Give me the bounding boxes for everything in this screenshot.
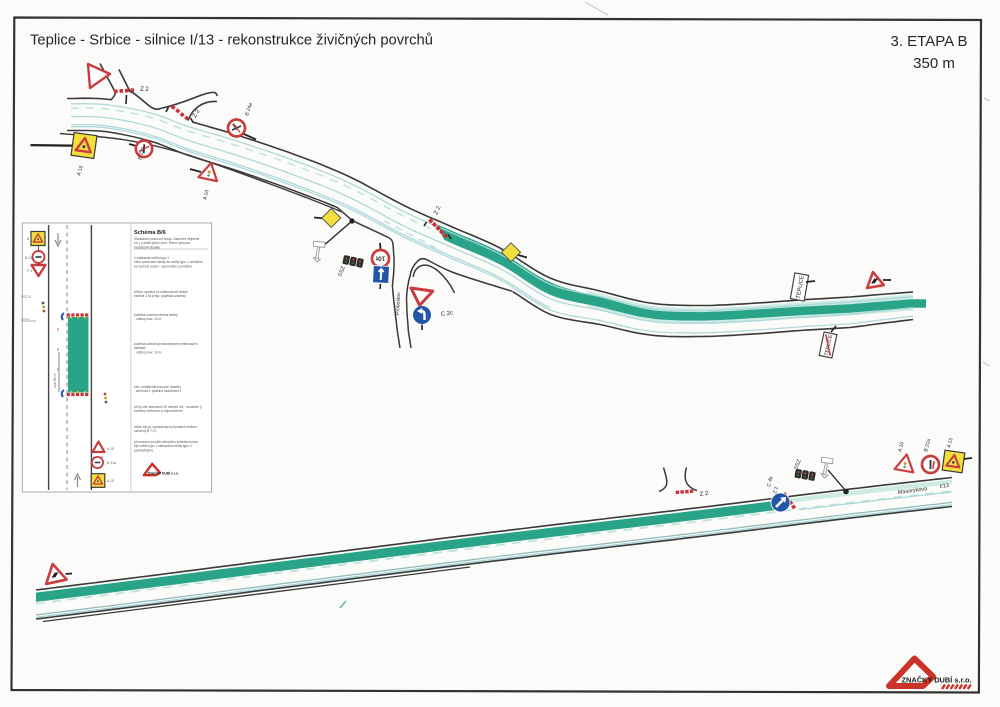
- svg-text:350 m: 350 m: [913, 55, 955, 72]
- svg-text:světelný měsíčním a doporučení: světelný měsíčním a doporučením: [134, 409, 183, 413]
- svg-text:B 21a: B 21a: [107, 461, 116, 465]
- svg-text:3. ETAPA B: 3. ETAPA B: [891, 33, 968, 50]
- svg-text:A 15: A 15: [107, 447, 114, 451]
- svg-text:cca 50 m: cca 50 m: [53, 373, 57, 388]
- svg-text:Teplice - Srbice - silnice I/: Teplice - Srbice - silnice I/13 - rekons…: [30, 33, 433, 49]
- svg-text:P 4: P 4: [27, 269, 32, 273]
- svg-text:Schéma B/6: Schéma B/6: [134, 230, 166, 236]
- svg-text:A 15: A 15: [107, 479, 114, 483]
- svg-text:miněně 3 ks (resp. podelná uzá: miněně 3 ks (resp. podelná uzávěra): [134, 294, 186, 298]
- svg-text:- odstup max. 10 m: - odstup max. 10 m: [134, 350, 162, 354]
- svg-text:výhled: výhled: [21, 317, 30, 321]
- svg-text:SSZ 3f: SSZ 3f: [21, 295, 31, 299]
- svg-text:nařízený B 7,2 t: nařízený B 7,2 t: [134, 429, 156, 433]
- svg-text:ZNAČKY DUBÍ s.r.o.: ZNAČKY DUBÍ s.r.o.: [147, 471, 178, 476]
- svg-text:ZNAČKY DUBÍ s.r.o.: ZNAČKY DUBÍ s.r.o.: [902, 676, 972, 685]
- svg-text:10t: 10t: [375, 254, 385, 261]
- svg-text:Proboštov: Proboštov: [395, 292, 402, 315]
- svg-text:(výstražnými): (výstražnými): [134, 448, 153, 452]
- svg-text:- odstup max. 10 m: - odstup max. 10 m: [134, 317, 162, 321]
- svg-text:I/13: I/13: [939, 483, 949, 490]
- svg-text:B 1: B 1: [27, 237, 32, 241]
- svg-text:na výchozí pozici - upozornění: na výchozí pozici - upozornění j umístěn…: [134, 264, 192, 268]
- svg-text:- směrová 1 podelná uzávěrami: - směrová 1 podelná uzávěrami 1: [134, 389, 182, 393]
- svg-text:Z 2: Z 2: [140, 87, 149, 93]
- svg-text:B 21a: B 21a: [25, 256, 34, 260]
